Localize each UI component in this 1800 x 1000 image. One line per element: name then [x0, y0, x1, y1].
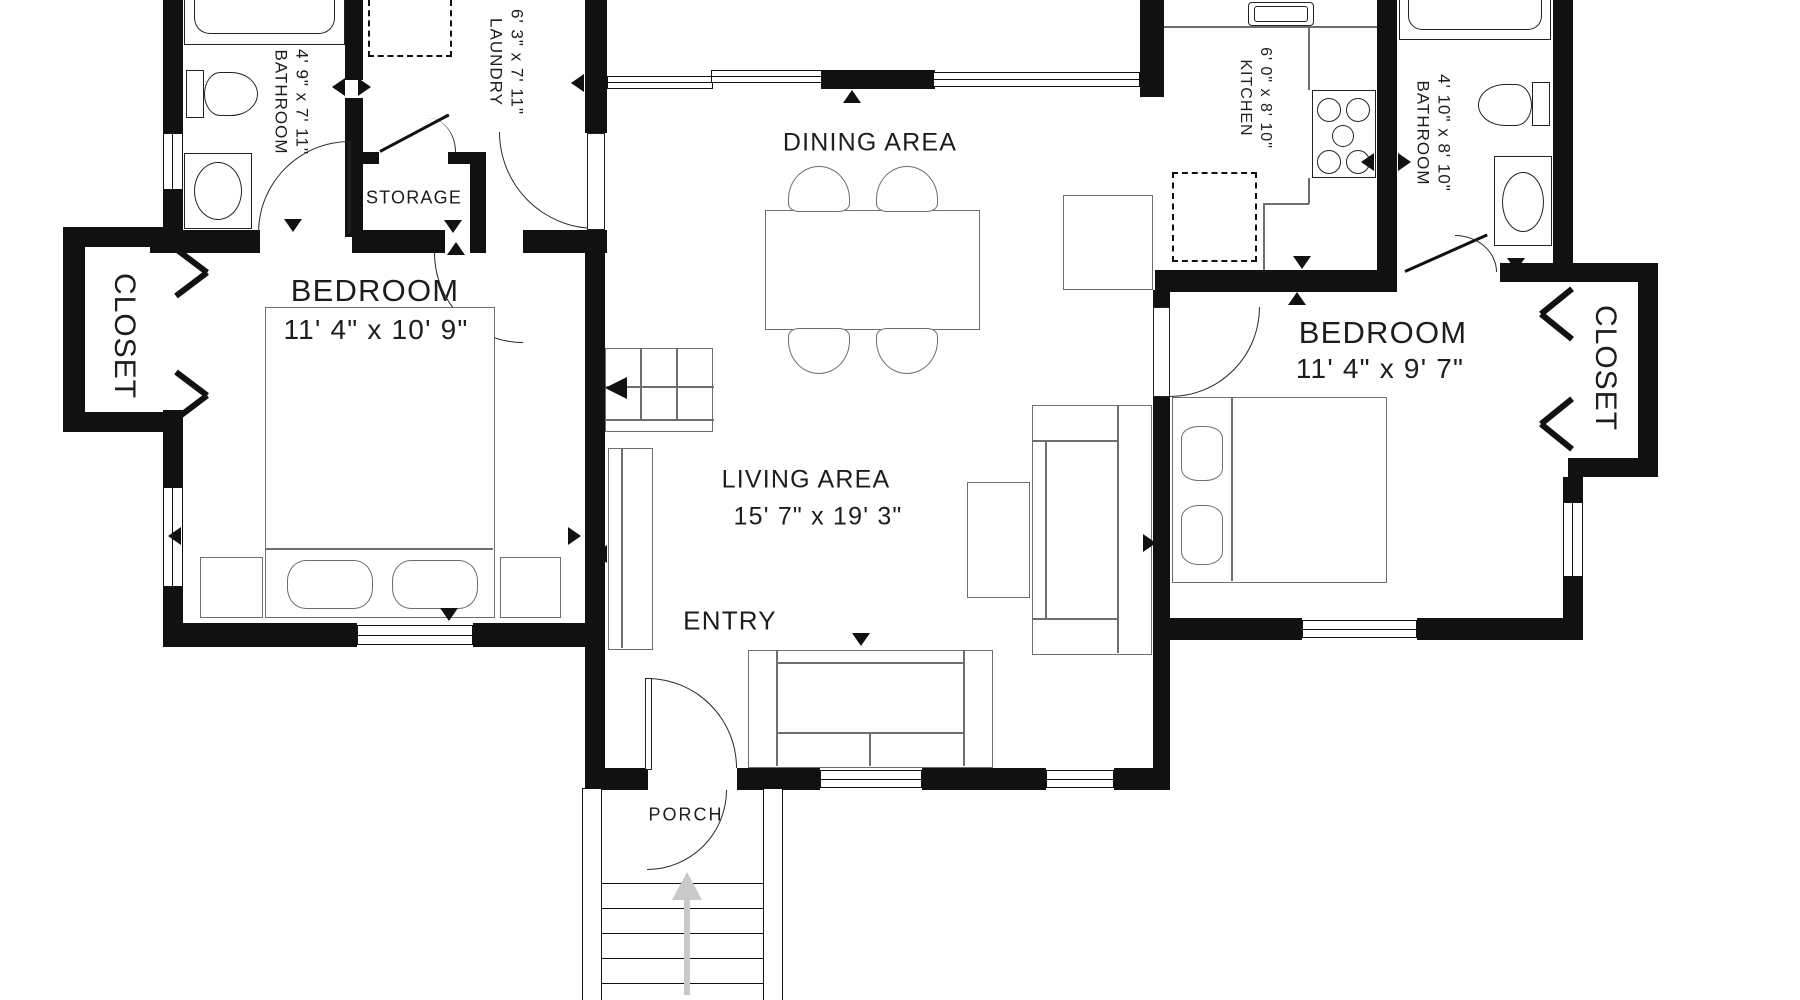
porch-rail — [582, 788, 602, 1000]
marker-icon — [332, 78, 345, 96]
stair-tread — [602, 933, 763, 934]
room-dims-bedroom-right: 11' 4" x 9' 7" — [1296, 353, 1464, 385]
front-door-opening — [647, 768, 738, 790]
wall — [1638, 263, 1658, 477]
bifold-door-icon — [1539, 312, 1574, 342]
wall — [163, 623, 357, 647]
wall — [1563, 477, 1583, 502]
wall — [1114, 768, 1170, 790]
room-label-storage: STORAGE — [366, 188, 462, 209]
burner-icon — [1317, 150, 1341, 174]
burner-icon — [1332, 125, 1354, 147]
room-name: BATHROOM — [1412, 74, 1433, 192]
door-leaf — [348, 141, 351, 233]
room-label-closet-right: CLOSET — [1586, 305, 1624, 431]
marker-icon — [447, 242, 465, 255]
room-label-kitchen: 6' 0" x 8' 10" KITCHEN — [1235, 47, 1275, 149]
dining-chair — [876, 166, 938, 212]
toilet-bowl — [1478, 84, 1532, 126]
washer-icon — [368, 0, 452, 57]
window — [820, 770, 922, 788]
bifold-door-icon — [174, 393, 209, 421]
window — [933, 72, 1140, 87]
wall — [473, 623, 587, 647]
door-leaf — [587, 133, 605, 230]
marker-icon — [440, 608, 458, 621]
wall — [163, 0, 183, 133]
window — [607, 76, 713, 89]
sink-basin — [1502, 172, 1544, 232]
kitchen-sink-basin — [1254, 6, 1308, 22]
wall — [821, 70, 935, 89]
dining-chair — [788, 328, 850, 374]
counter-edge — [1263, 203, 1265, 270]
room-label-bathroom-left: 4' 9" x 7' 11" BATHROOM — [270, 49, 313, 155]
wall — [1568, 458, 1658, 477]
window — [1563, 502, 1583, 577]
marker-icon — [444, 220, 462, 233]
pillow-icon — [1181, 505, 1223, 565]
marker-icon — [843, 90, 861, 103]
marker-icon — [1361, 153, 1374, 171]
dining-table — [765, 210, 980, 330]
marker-icon — [1143, 534, 1156, 552]
room-name: KITCHEN — [1235, 47, 1255, 149]
kitchen-counter — [1063, 195, 1153, 290]
sofa — [1032, 405, 1152, 655]
room-label-entry: ENTRY — [683, 606, 777, 637]
room-label-bedroom-right: BEDROOM — [1299, 315, 1468, 351]
arrow-up-icon — [672, 872, 702, 900]
wall — [1153, 290, 1170, 307]
wall — [345, 0, 363, 80]
room-dims: 4' 9" x 7' 11" — [291, 49, 312, 155]
burner-icon — [1317, 98, 1341, 122]
wall — [448, 152, 470, 164]
room-name: BATHROOM — [270, 49, 291, 155]
room-label-bathroom-right: 4' 10" x 8' 10" BATHROOM — [1412, 74, 1455, 192]
wall — [163, 410, 183, 487]
wall — [63, 227, 85, 432]
room-label-living: LIVING AREA — [722, 466, 891, 495]
door-arc — [647, 790, 727, 870]
dining-chair — [876, 328, 938, 374]
bathtub-inner — [194, 0, 335, 34]
door-arc — [499, 132, 596, 229]
wall — [1377, 0, 1397, 292]
room-label-dining: DINING AREA — [783, 129, 957, 158]
porch-rail — [763, 788, 783, 1000]
console-table — [608, 448, 653, 650]
wall — [922, 768, 1046, 790]
marker-icon — [1398, 153, 1411, 171]
wall — [1140, 0, 1164, 97]
door-arc — [428, 118, 456, 152]
window — [1046, 770, 1114, 788]
dining-chair — [788, 166, 850, 212]
toilet-bowl — [204, 72, 258, 116]
wall — [1155, 270, 1397, 292]
pillow-icon — [287, 560, 373, 609]
window — [711, 70, 823, 83]
room-dims: 6' 0" x 8' 10" — [1255, 47, 1275, 149]
stair-tread — [602, 958, 763, 959]
window — [357, 625, 473, 645]
floor-plan: BEDROOM 11' 4" x 10' 9" CLOSET 4' 9" x 7… — [0, 0, 1800, 1000]
room-dims-bedroom-left: 11' 4" x 10' 9" — [283, 314, 468, 346]
door-arc — [647, 678, 737, 768]
pillow-icon — [392, 560, 478, 609]
marker-icon — [1293, 256, 1311, 269]
stair-tread — [602, 983, 763, 984]
wall — [352, 230, 445, 253]
nightstand — [500, 557, 561, 618]
room-label-bedroom-left: BEDROOM — [291, 273, 460, 309]
wall — [585, 768, 647, 790]
counter-edge — [1164, 26, 1377, 28]
sofa — [748, 650, 993, 768]
window — [1302, 620, 1417, 638]
room-label-closet-left: CLOSET — [105, 273, 143, 399]
marker-icon — [168, 527, 181, 545]
bathtub-inner — [1408, 0, 1542, 30]
appliance-icon — [1172, 172, 1257, 262]
wall — [363, 152, 379, 164]
wall — [470, 152, 486, 253]
counter-edge — [1308, 26, 1310, 90]
toilet-icon — [1532, 82, 1550, 126]
pillow-icon — [1181, 426, 1223, 481]
wall — [1170, 618, 1302, 640]
toilet-icon — [186, 70, 204, 118]
marker-icon — [571, 74, 584, 92]
wall — [1417, 618, 1583, 640]
marker-icon — [852, 633, 870, 646]
room-label-porch: PORCH — [648, 805, 723, 826]
bifold-door-icon — [174, 270, 209, 298]
bifold-door-icon — [1539, 422, 1574, 452]
wall — [585, 0, 607, 133]
wall — [1153, 397, 1170, 770]
door-arc — [1455, 235, 1497, 272]
wall — [63, 412, 165, 432]
window — [163, 133, 183, 190]
marker-icon — [1288, 292, 1306, 305]
arrow-icon — [605, 377, 627, 399]
wall — [738, 768, 820, 790]
burner-icon — [1346, 98, 1370, 122]
counter-edge — [1263, 203, 1309, 205]
counter-edge — [1308, 178, 1310, 204]
door-leaf — [1153, 307, 1170, 397]
marker-icon — [594, 545, 607, 563]
room-label-laundry: 6' 3" x 7' 11" LAUNDRY — [485, 9, 528, 115]
marker-icon — [1507, 258, 1525, 271]
room-name: LAUNDRY — [485, 9, 506, 115]
stair-direction-arrow — [684, 898, 690, 995]
room-dims: 4' 10" x 8' 10" — [1433, 74, 1454, 192]
wall — [150, 230, 260, 253]
room-dims-living: 15' 7" x 19' 3" — [733, 503, 902, 532]
coffee-table — [967, 482, 1030, 598]
wall — [585, 250, 605, 770]
wall — [1553, 0, 1573, 263]
door-leaf — [645, 678, 652, 770]
nightstand — [200, 557, 263, 618]
marker-icon — [358, 78, 371, 96]
marker-icon — [284, 219, 302, 232]
marker-icon — [568, 527, 581, 545]
stair-tread — [602, 908, 763, 909]
room-dims: 6' 3" x 7' 11" — [506, 9, 527, 115]
door-arc — [1170, 307, 1260, 397]
sink-basin — [194, 162, 242, 220]
